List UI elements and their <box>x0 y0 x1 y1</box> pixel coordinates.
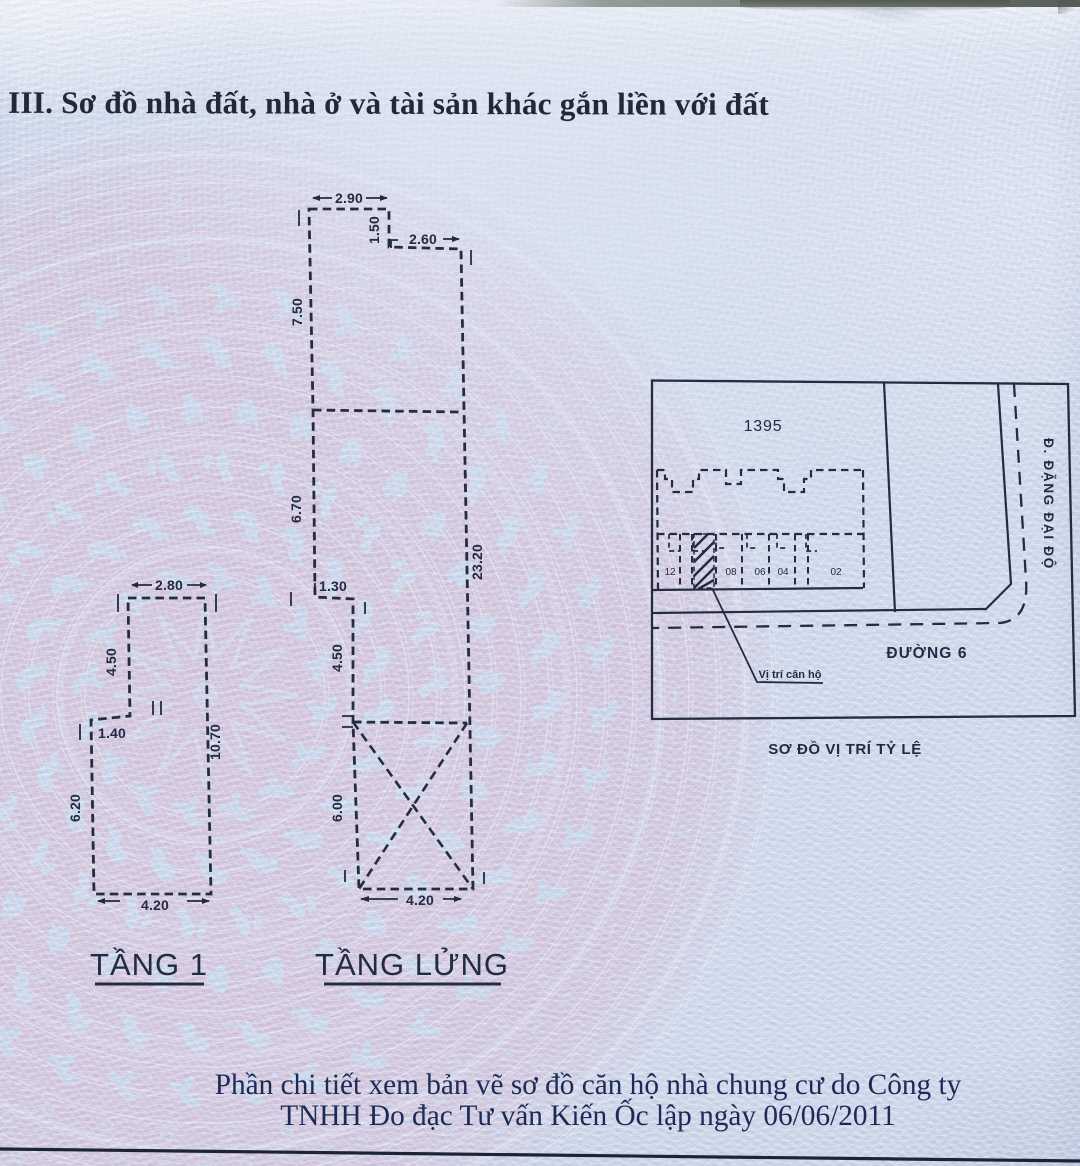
svg-text:1.30: 1.30 <box>319 578 347 594</box>
svg-text:23.20: 23.20 <box>469 544 485 580</box>
svg-text:TẦNG LỬNG: TẦNG LỬNG <box>315 946 509 982</box>
svg-text:7.50: 7.50 <box>289 298 305 326</box>
svg-text:02: 02 <box>830 567 842 578</box>
svg-text:08: 08 <box>725 567 737 578</box>
svg-text:12: 12 <box>664 567 676 578</box>
svg-text:04: 04 <box>777 567 789 578</box>
svg-text:ĐƯỜNG 6: ĐƯỜNG 6 <box>886 644 967 662</box>
svg-text:1.40: 1.40 <box>98 725 126 741</box>
svg-text:1395: 1395 <box>744 418 783 435</box>
svg-text:2.80: 2.80 <box>155 577 183 593</box>
svg-text:4.50: 4.50 <box>103 648 119 676</box>
svg-text:4.20: 4.20 <box>141 897 169 913</box>
svg-text:6.20: 6.20 <box>67 794 83 822</box>
svg-text:4.20: 4.20 <box>406 892 434 908</box>
svg-text:Vị trí căn hộ: Vị trí căn hộ <box>759 669 822 681</box>
svg-text:06: 06 <box>754 567 766 578</box>
svg-text:4.50: 4.50 <box>329 644 345 672</box>
svg-text:SƠ ĐỒ VỊ TRÍ TỶ LỆ: SƠ ĐỒ VỊ TRÍ TỶ LỆ <box>768 740 922 758</box>
svg-text:Đ. ĐẶNG ĐẠI ĐỘ: Đ. ĐẶNG ĐẠI ĐỘ <box>1041 438 1056 570</box>
svg-text:10.70: 10.70 <box>207 724 223 760</box>
svg-text:1.50: 1.50 <box>366 216 382 244</box>
svg-text:6.70: 6.70 <box>288 495 304 523</box>
svg-text:6.00: 6.00 <box>329 794 345 822</box>
svg-text:2.90: 2.90 <box>335 190 363 206</box>
svg-text:2.60: 2.60 <box>409 231 437 247</box>
svg-text:TẦNG 1: TẦNG 1 <box>90 947 208 982</box>
